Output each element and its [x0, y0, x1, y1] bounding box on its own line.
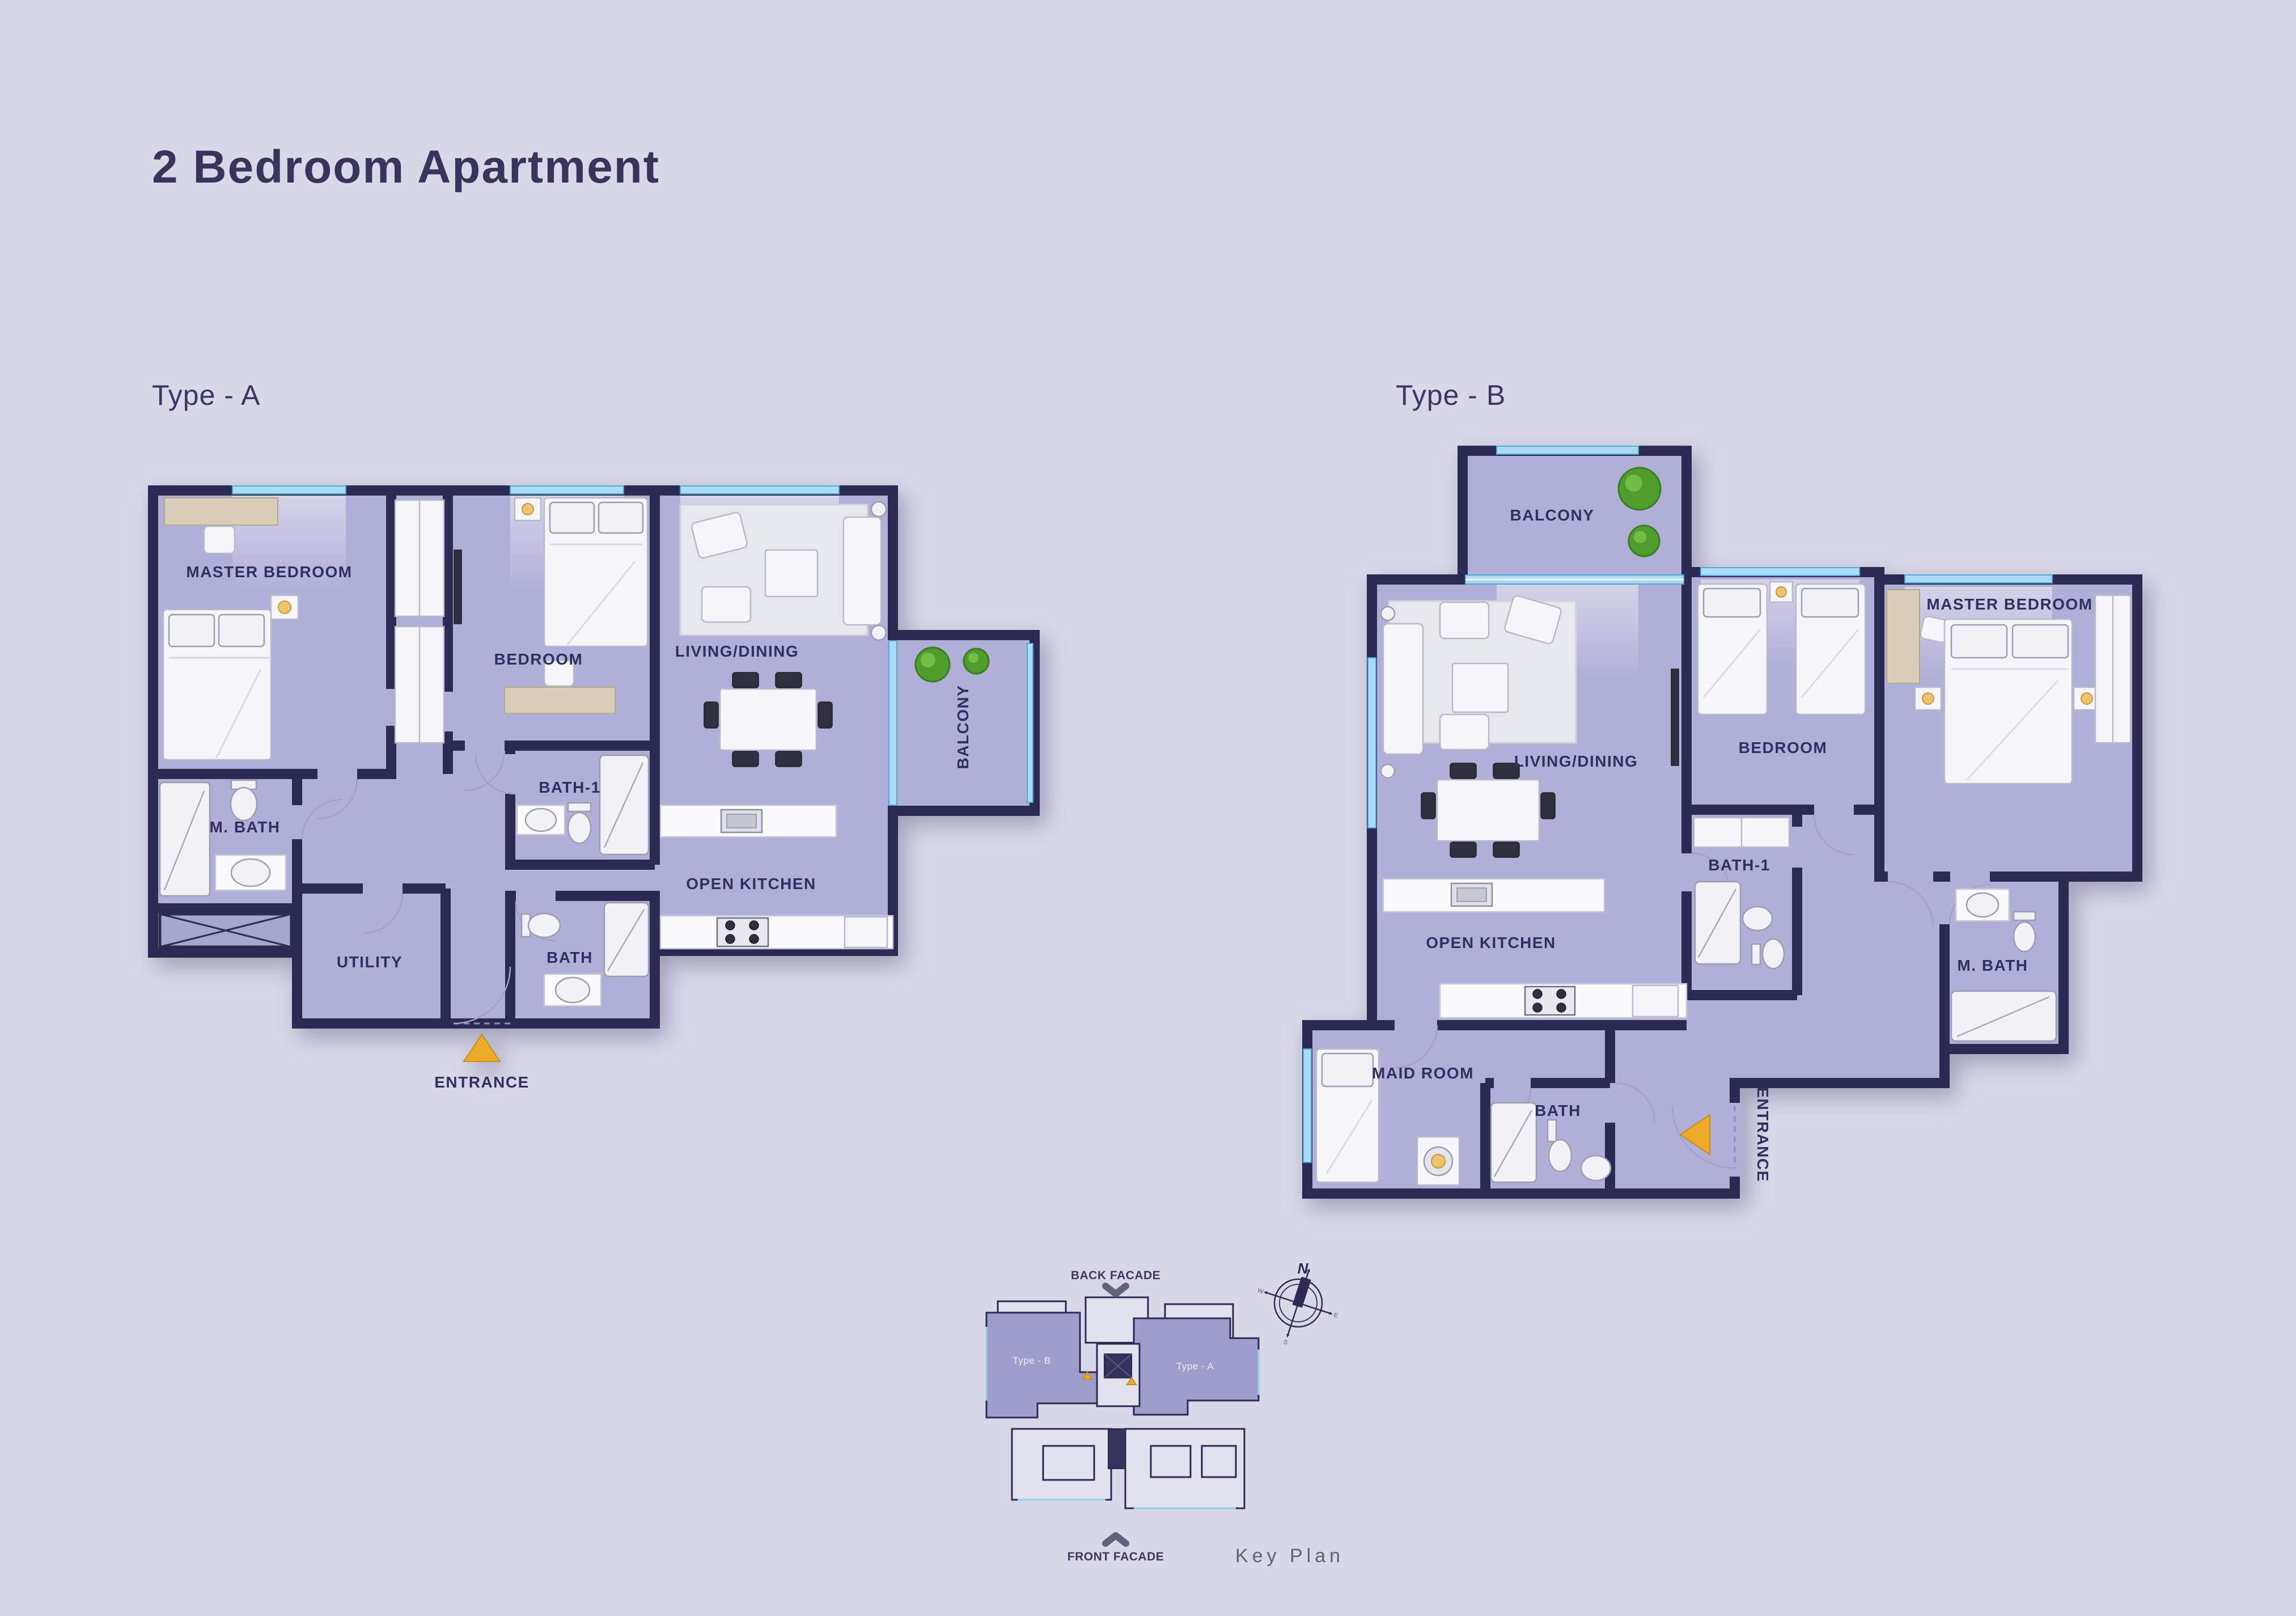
type-b-floorplan: BALCONY LIVING/DINING OPEN KITCHEN MAID …: [1304, 431, 2188, 1247]
type-a-floorplan: MASTER BEDROOM BEDROOM LIVING/DINING BAL…: [147, 465, 1043, 1106]
room-label-b-entrance: ENTRANCE: [1754, 1087, 1772, 1182]
room-label-b-maid: MAID ROOM: [1372, 1064, 1474, 1082]
compass-west-label: W: [1256, 1287, 1264, 1296]
room-label-b-bath1: BATH-1: [1708, 856, 1770, 874]
room-label-b-balcony: BALCONY: [1510, 506, 1595, 524]
room-label-b-kitchen: OPEN KITCHEN: [1426, 934, 1556, 951]
key-plan-unit-b-label: Type - B: [1013, 1355, 1050, 1366]
room-label-b-bath: BATH: [1535, 1102, 1581, 1119]
room-label-a-bath: BATH: [547, 949, 593, 966]
room-label-a-living: LIVING/DINING: [675, 642, 799, 660]
room-label-a-bedroom: BEDROOM: [494, 650, 583, 668]
key-plan-title: Key Plan: [1235, 1545, 1344, 1567]
room-label-a-master: MASTER BEDROOM: [186, 563, 352, 581]
room-label-a-balcony: BALCONY: [954, 685, 972, 769]
back-facade-label: BACK FACADE: [1071, 1269, 1160, 1282]
type-a-entrance-arrow: [464, 1034, 500, 1061]
front-facade-label: FRONT FACADE: [1067, 1550, 1164, 1563]
room-label-a-mbath: M. BATH: [209, 818, 280, 836]
front-facade-arrow-icon: [1105, 1535, 1126, 1543]
plan-b-title: Type - B: [1396, 379, 1506, 412]
back-facade-arrow-icon: [1105, 1286, 1126, 1294]
compass-north-label: N: [1298, 1260, 1309, 1277]
key-plan: Type - B Type - A BACK FACADE FRONT FACA…: [964, 1259, 1395, 1588]
room-label-a-bath1: BATH-1: [539, 779, 601, 796]
compass-east-label: E: [1333, 1312, 1339, 1320]
room-label-b-mbath: M. BATH: [1957, 957, 2028, 974]
plan-a-title: Type - A: [152, 379, 260, 412]
room-label-a-kitchen: OPEN KITCHEN: [686, 875, 816, 892]
room-label-a-entrance: ENTRANCE: [434, 1073, 529, 1091]
type-a-shaft: [160, 914, 291, 947]
compass-icon: W E S N: [1244, 1255, 1349, 1359]
room-label-b-master: MASTER BEDROOM: [1926, 595, 2092, 613]
key-plan-unit-a-label: Type - A: [1176, 1361, 1214, 1372]
page-canvas: 2 Bedroom Apartment Type - A Type - B: [0, 0, 2296, 1616]
room-label-a-utility: UTILITY: [337, 953, 403, 971]
page-title: 2 Bedroom Apartment: [152, 141, 660, 194]
room-label-b-bedroom: BEDROOM: [1739, 739, 1828, 756]
compass-south-label: S: [1282, 1339, 1289, 1347]
room-label-b-living: LIVING/DINING: [1514, 752, 1638, 770]
key-plan-building: Type - B Type - A: [986, 1297, 1259, 1508]
